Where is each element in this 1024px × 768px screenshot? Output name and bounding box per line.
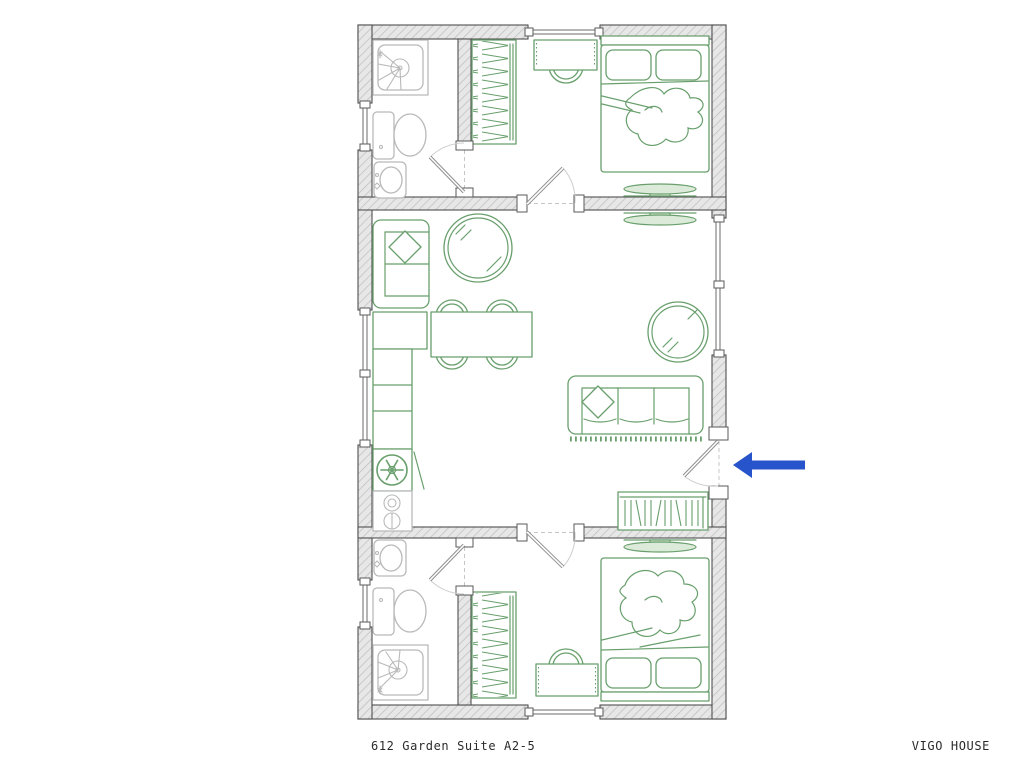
toilet-icon [373, 112, 426, 159]
desk [536, 664, 598, 696]
double-bed [601, 36, 709, 172]
window-bottom-wall [525, 708, 603, 716]
fridge-freezer-icon [373, 449, 424, 491]
wardrobe [472, 592, 516, 698]
window-right-living [714, 215, 724, 357]
bathroom-bottom [373, 540, 428, 700]
double-bed [601, 558, 709, 701]
shower-icon [373, 40, 428, 95]
living-kitchen [373, 213, 708, 531]
bookshelf [618, 492, 708, 530]
bathroom-top [373, 40, 428, 198]
tv-living [624, 213, 696, 225]
window-left-bottom [360, 578, 370, 629]
bedroom-top-door [517, 168, 584, 212]
round-rug-1 [444, 214, 512, 282]
toilet-icon [373, 588, 426, 635]
bedroom-bottom-door [517, 524, 584, 567]
floor-plan-page: 612 Garden Suite A2-5 VIGO HOUSE [0, 0, 1024, 768]
wardrobe [472, 40, 516, 144]
tv-bedroom-top [624, 184, 696, 196]
shower-icon [373, 645, 428, 700]
two-seat-sofa [373, 220, 429, 308]
tv-bedroom-bottom [624, 540, 696, 552]
three-seat-sofa [568, 376, 703, 439]
dining-table [431, 312, 532, 357]
building-name: VIGO HOUSE [912, 739, 990, 753]
bathroom-bottom-door [430, 538, 473, 595]
window-left-middle [360, 308, 370, 447]
window-top-wall [525, 28, 603, 36]
entrance-arrow-icon [733, 452, 805, 478]
bedroom-top [472, 36, 709, 196]
window-left-top [360, 101, 370, 151]
cooktop-icon [373, 491, 412, 531]
round-rug-2 [648, 302, 708, 362]
sink-icon [374, 162, 406, 198]
bathroom-top-door [430, 141, 473, 197]
plan-title: 612 Garden Suite A2-5 [371, 739, 535, 753]
floor-plan-canvas [0, 0, 1024, 768]
kitchen-counter [373, 312, 427, 449]
desk [534, 40, 597, 70]
bedroom-bottom [472, 540, 709, 701]
sink-icon [374, 540, 406, 576]
